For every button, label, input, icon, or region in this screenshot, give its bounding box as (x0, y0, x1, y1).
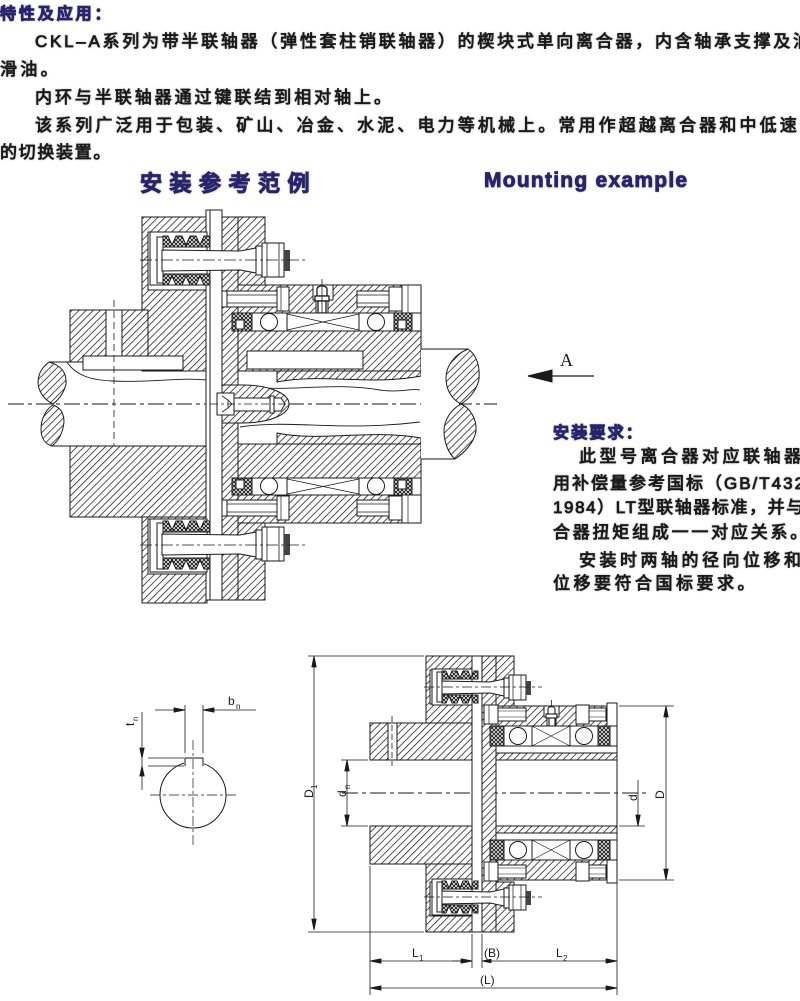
svg-text:2: 2 (563, 954, 568, 963)
svg-text:d: d (626, 794, 640, 801)
svg-text:L: L (412, 946, 419, 960)
svg-text:n: n (236, 702, 240, 711)
svg-text:n: n (131, 717, 140, 721)
svg-text:d: d (335, 790, 349, 797)
svg-text:(B): (B) (484, 946, 500, 960)
svg-text:1: 1 (419, 954, 424, 963)
svg-text:t: t (123, 722, 137, 726)
svg-text:b: b (228, 694, 235, 708)
svg-text:D: D (302, 789, 316, 798)
svg-text:A: A (560, 350, 573, 370)
svg-text:1: 1 (310, 784, 319, 789)
svg-text:n: n (343, 785, 352, 789)
svg-text:(L): (L) (480, 973, 495, 987)
svg-text:D: D (653, 790, 667, 799)
svg-text:L: L (556, 946, 563, 960)
